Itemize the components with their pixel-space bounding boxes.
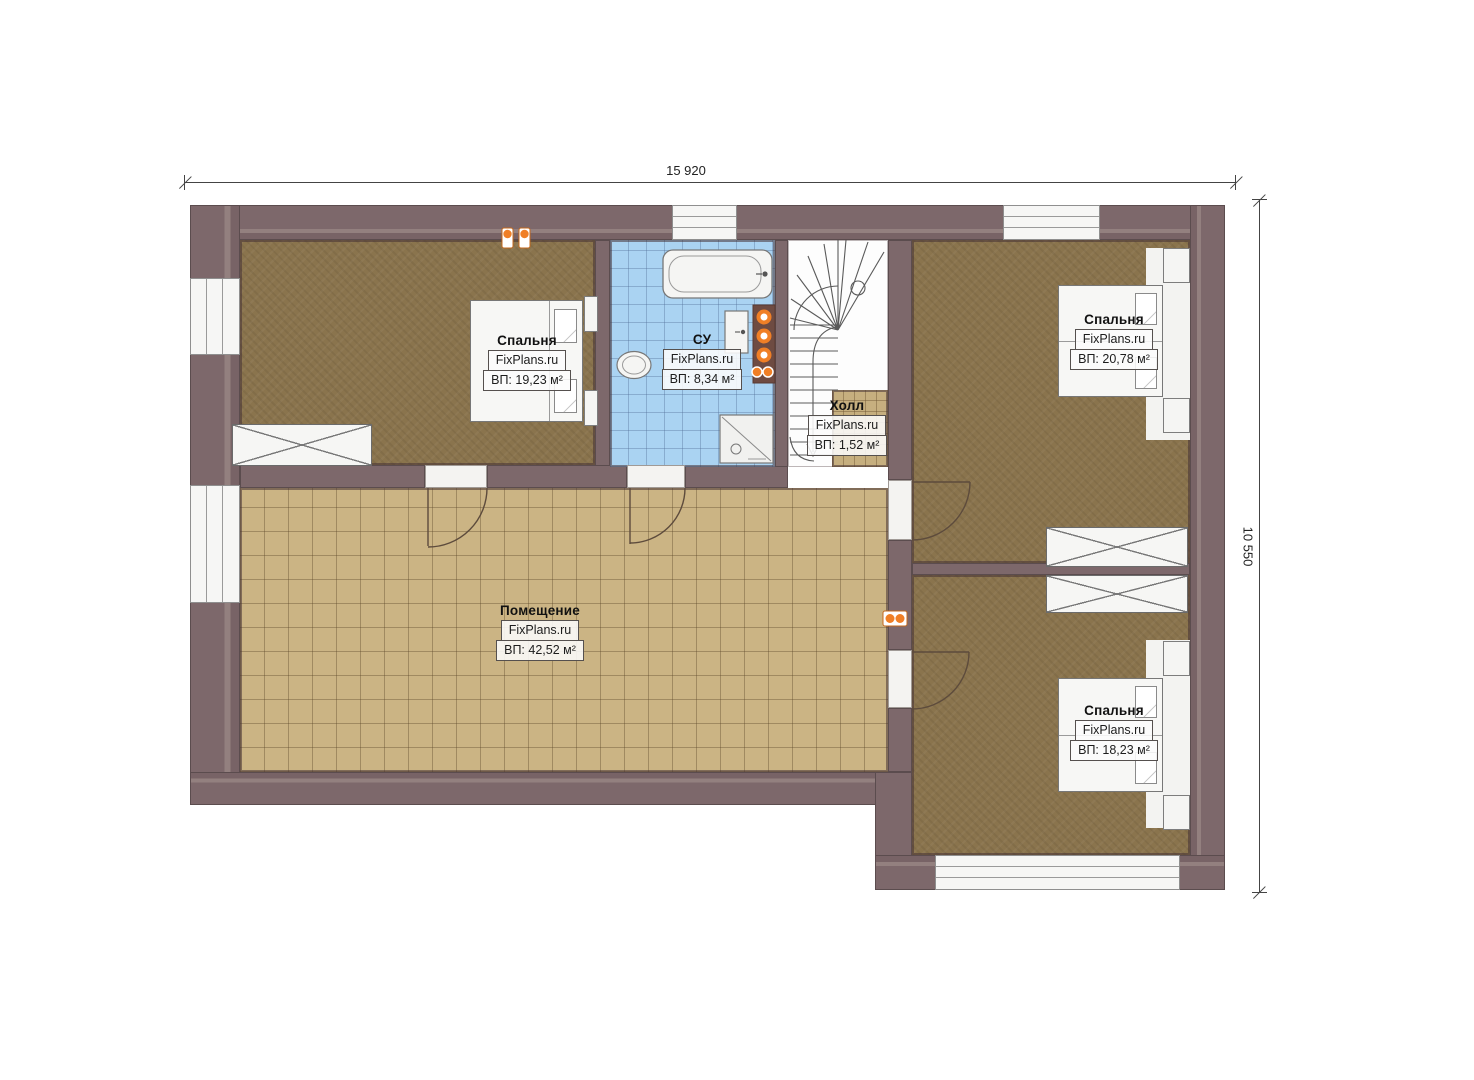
room-area: ВП: 19,23 м²	[483, 370, 571, 391]
wall-middle-b	[487, 465, 627, 488]
wall-corridor-2	[888, 540, 912, 650]
room-brand: FixPlans.ru	[1075, 329, 1154, 350]
room-name: Спальня	[1084, 703, 1144, 718]
dimension-width-label: 15 920	[626, 163, 746, 178]
wall-bottom-main	[190, 772, 910, 805]
room-area: ВП: 8,34 м²	[662, 369, 743, 390]
room-name: Спальня	[497, 333, 557, 348]
wall-middle-a	[240, 465, 425, 488]
room-brand: FixPlans.ru	[501, 620, 580, 641]
nightstand	[1163, 641, 1190, 676]
window-top-2	[1003, 205, 1100, 240]
room-brand: FixPlans.ru	[808, 415, 887, 436]
wall-bedroom1-bathroom	[595, 240, 610, 480]
room-label-hall: Холл FixPlans.ru ВП: 1,52 м²	[777, 398, 917, 456]
room-label-bedroom2: Спальня FixPlans.ru ВП: 20,78 м²	[1044, 312, 1184, 370]
nightstand	[1163, 398, 1190, 433]
window-left-1	[190, 278, 240, 355]
door-threshold-bathroom	[627, 465, 685, 488]
window-top-1	[672, 205, 737, 240]
room-name: Холл	[830, 398, 865, 413]
room-name: Помещение	[500, 603, 580, 618]
room-label-bedroom1: Спальня FixPlans.ru ВП: 19,23 м²	[457, 333, 597, 391]
room-area: ВП: 42,52 м²	[496, 640, 584, 661]
room-brand: FixPlans.ru	[1075, 720, 1154, 741]
room-brand: FixPlans.ru	[488, 350, 567, 371]
nightstand	[1163, 795, 1190, 830]
door-threshold-bedroom3	[888, 650, 912, 708]
room-brand: FixPlans.ru	[663, 349, 742, 370]
wardrobe-bedroom1	[232, 424, 372, 466]
nightstand	[1163, 248, 1190, 283]
dimension-line-top	[185, 182, 1236, 183]
room-area: ВП: 18,23 м²	[1070, 740, 1158, 761]
floor-plan-canvas: Спальня FixPlans.ru ВП: 19,23 м² СУ FixP…	[0, 0, 1474, 1080]
room-label-main-room: Помещение FixPlans.ru ВП: 42,52 м²	[470, 603, 610, 661]
room-label-bedroom3: Спальня FixPlans.ru ВП: 18,23 м²	[1044, 703, 1184, 761]
dimension-line-right	[1259, 200, 1260, 893]
wall-middle-c	[685, 465, 788, 488]
room-area: ВП: 20,78 м²	[1070, 349, 1158, 370]
dimension-height-label: 10 550	[1241, 507, 1256, 587]
room-label-bathroom: СУ FixPlans.ru ВП: 8,34 м²	[632, 332, 772, 390]
window-wing-bottom	[935, 855, 1180, 890]
wardrobe-bedroom2	[1046, 527, 1188, 567]
nightstand	[584, 296, 598, 332]
door-threshold-bedroom2	[888, 480, 912, 540]
room-area: ВП: 1,52 м²	[807, 435, 888, 456]
door-threshold-bedroom1	[425, 465, 487, 488]
wall-right	[1190, 205, 1225, 890]
nightstand	[584, 390, 598, 426]
wall-corridor-3	[888, 708, 912, 772]
room-name: СУ	[693, 332, 711, 347]
room-name: Спальня	[1084, 312, 1144, 327]
window-left-2	[190, 485, 240, 603]
wardrobe-bedroom3	[1046, 575, 1188, 613]
